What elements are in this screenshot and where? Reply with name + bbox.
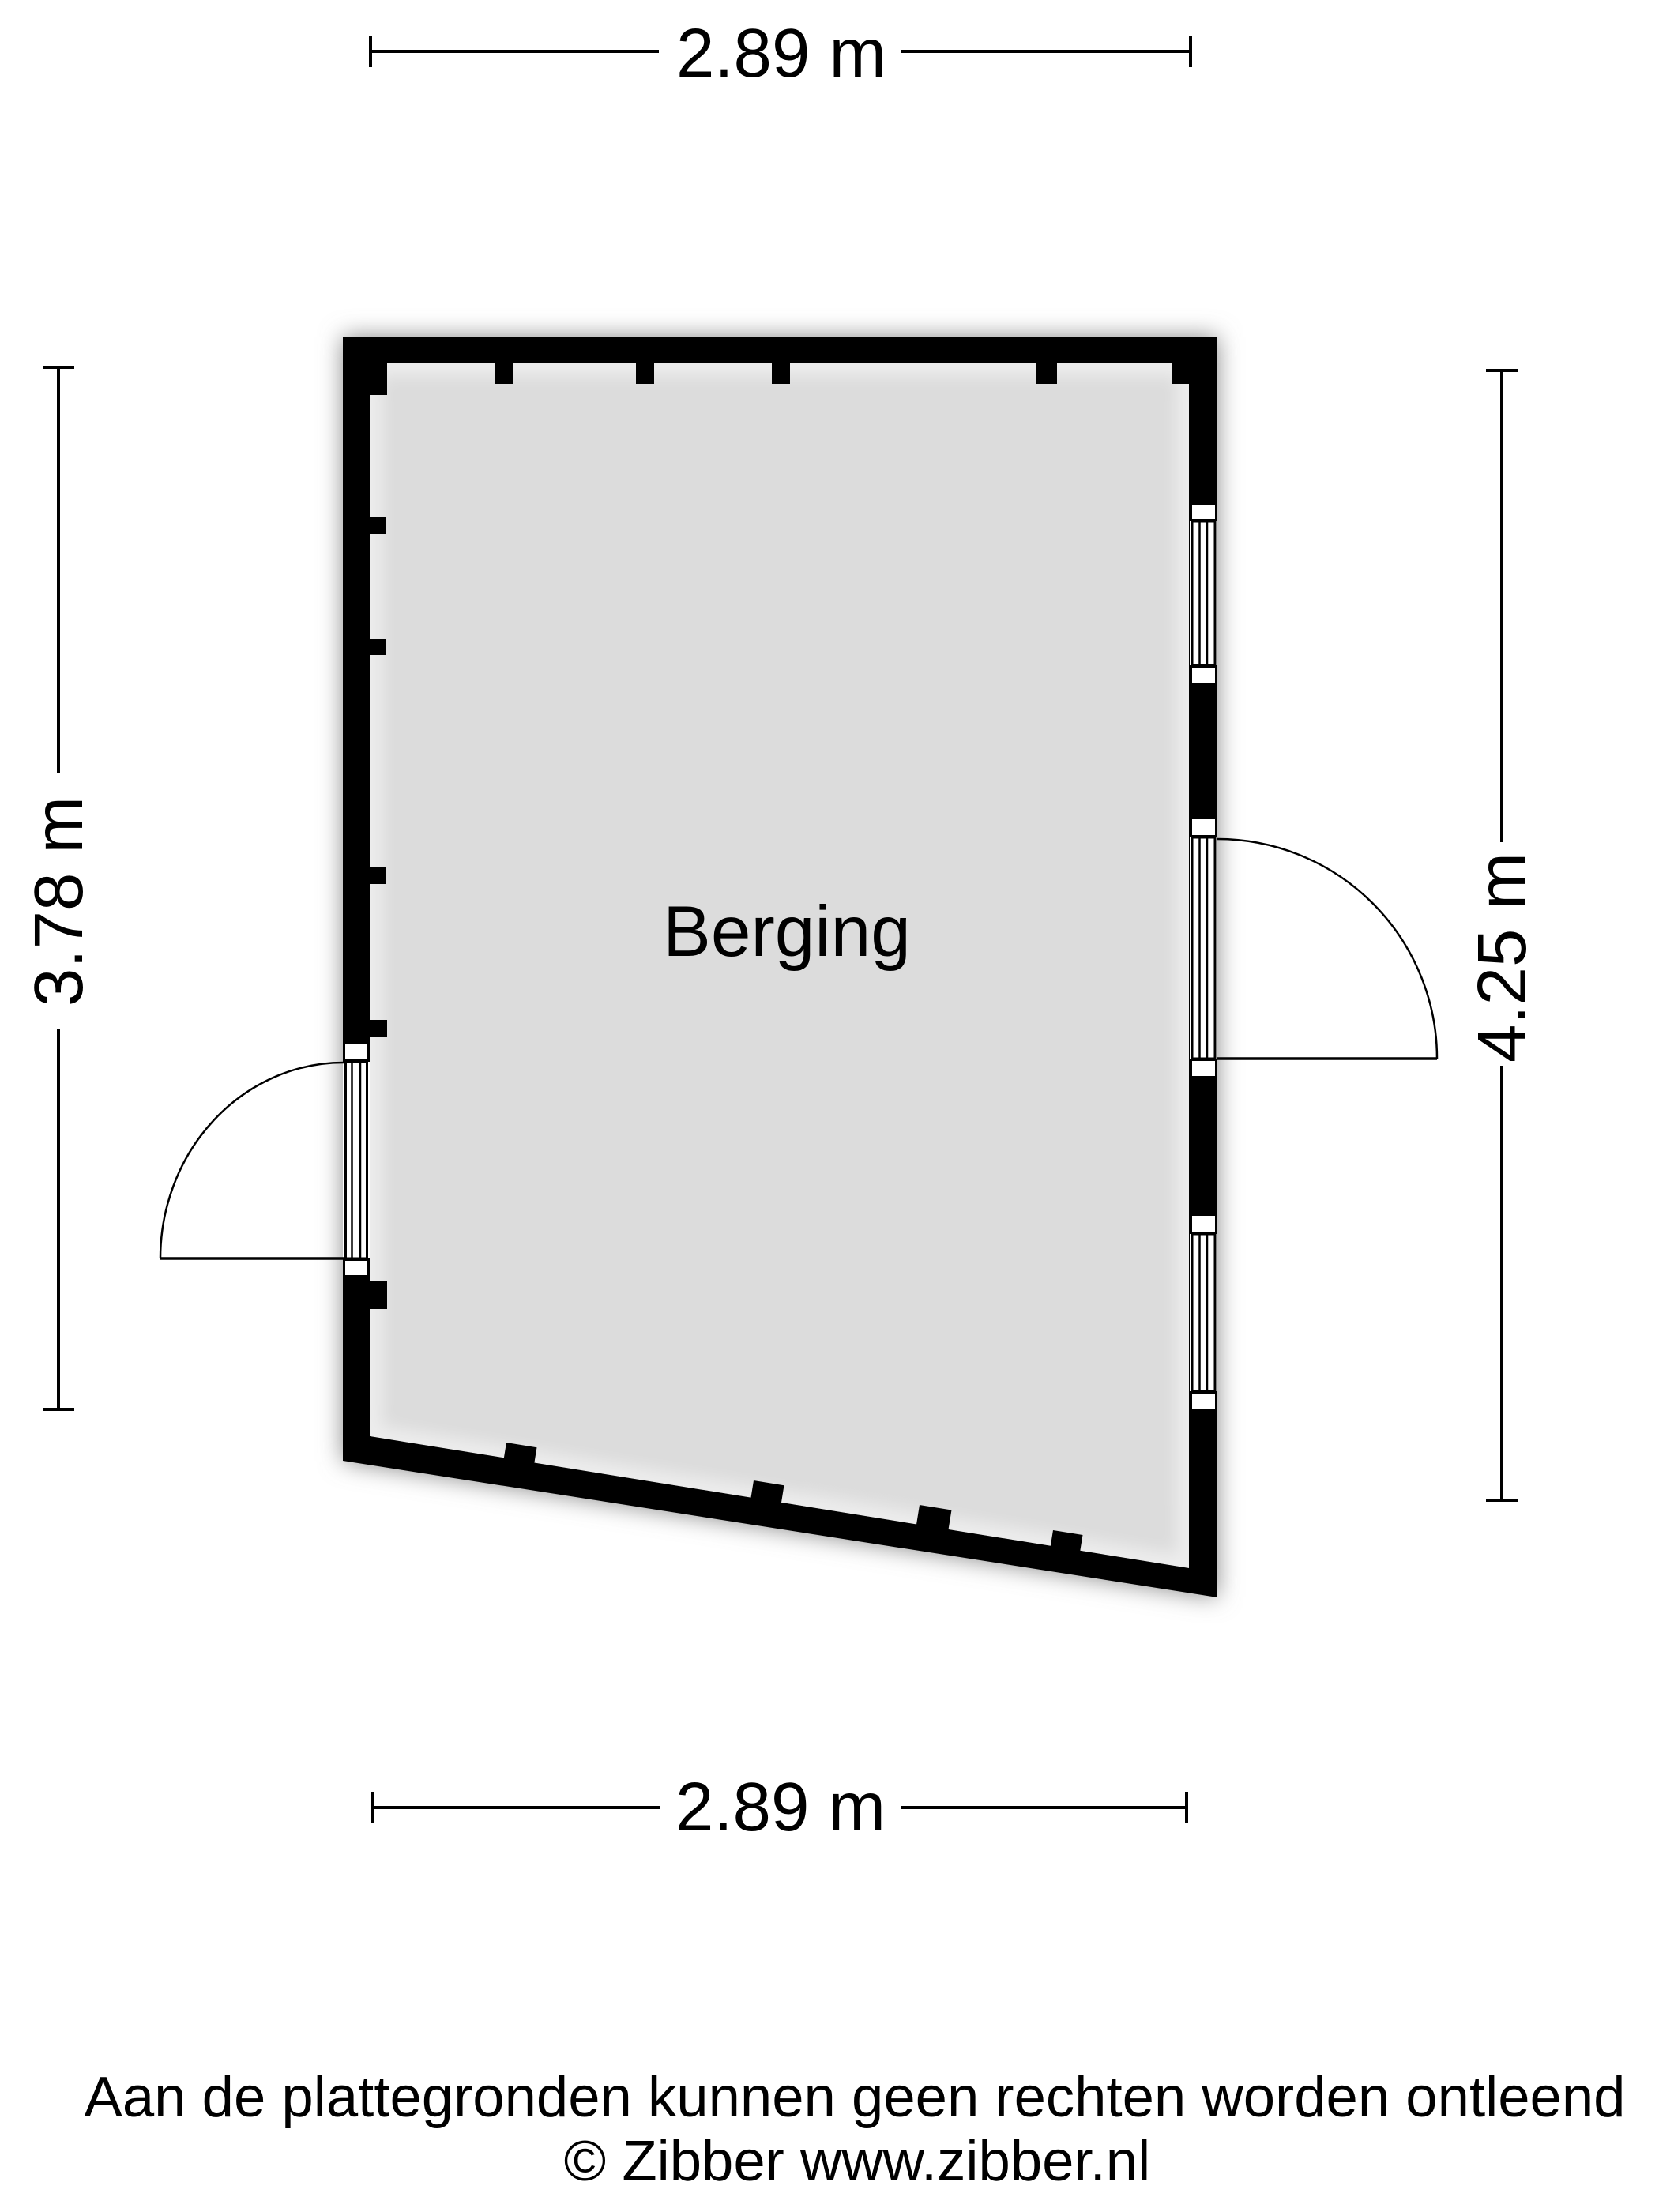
svg-text:Aan de plattegronden kunnen ge: Aan de plattegronden kunnen geen rechten…	[85, 2065, 1626, 2129]
svg-text:3.78 m: 3.78 m	[21, 796, 97, 1006]
svg-text:© Zibber www.zibber.nl: © Zibber www.zibber.nl	[564, 2129, 1150, 2193]
svg-text:2.89 m: 2.89 m	[675, 1769, 886, 1845]
svg-text:4.25 m: 4.25 m	[1464, 852, 1540, 1063]
svg-text:2.89 m: 2.89 m	[676, 15, 886, 92]
svg-text:Berging: Berging	[663, 892, 911, 972]
